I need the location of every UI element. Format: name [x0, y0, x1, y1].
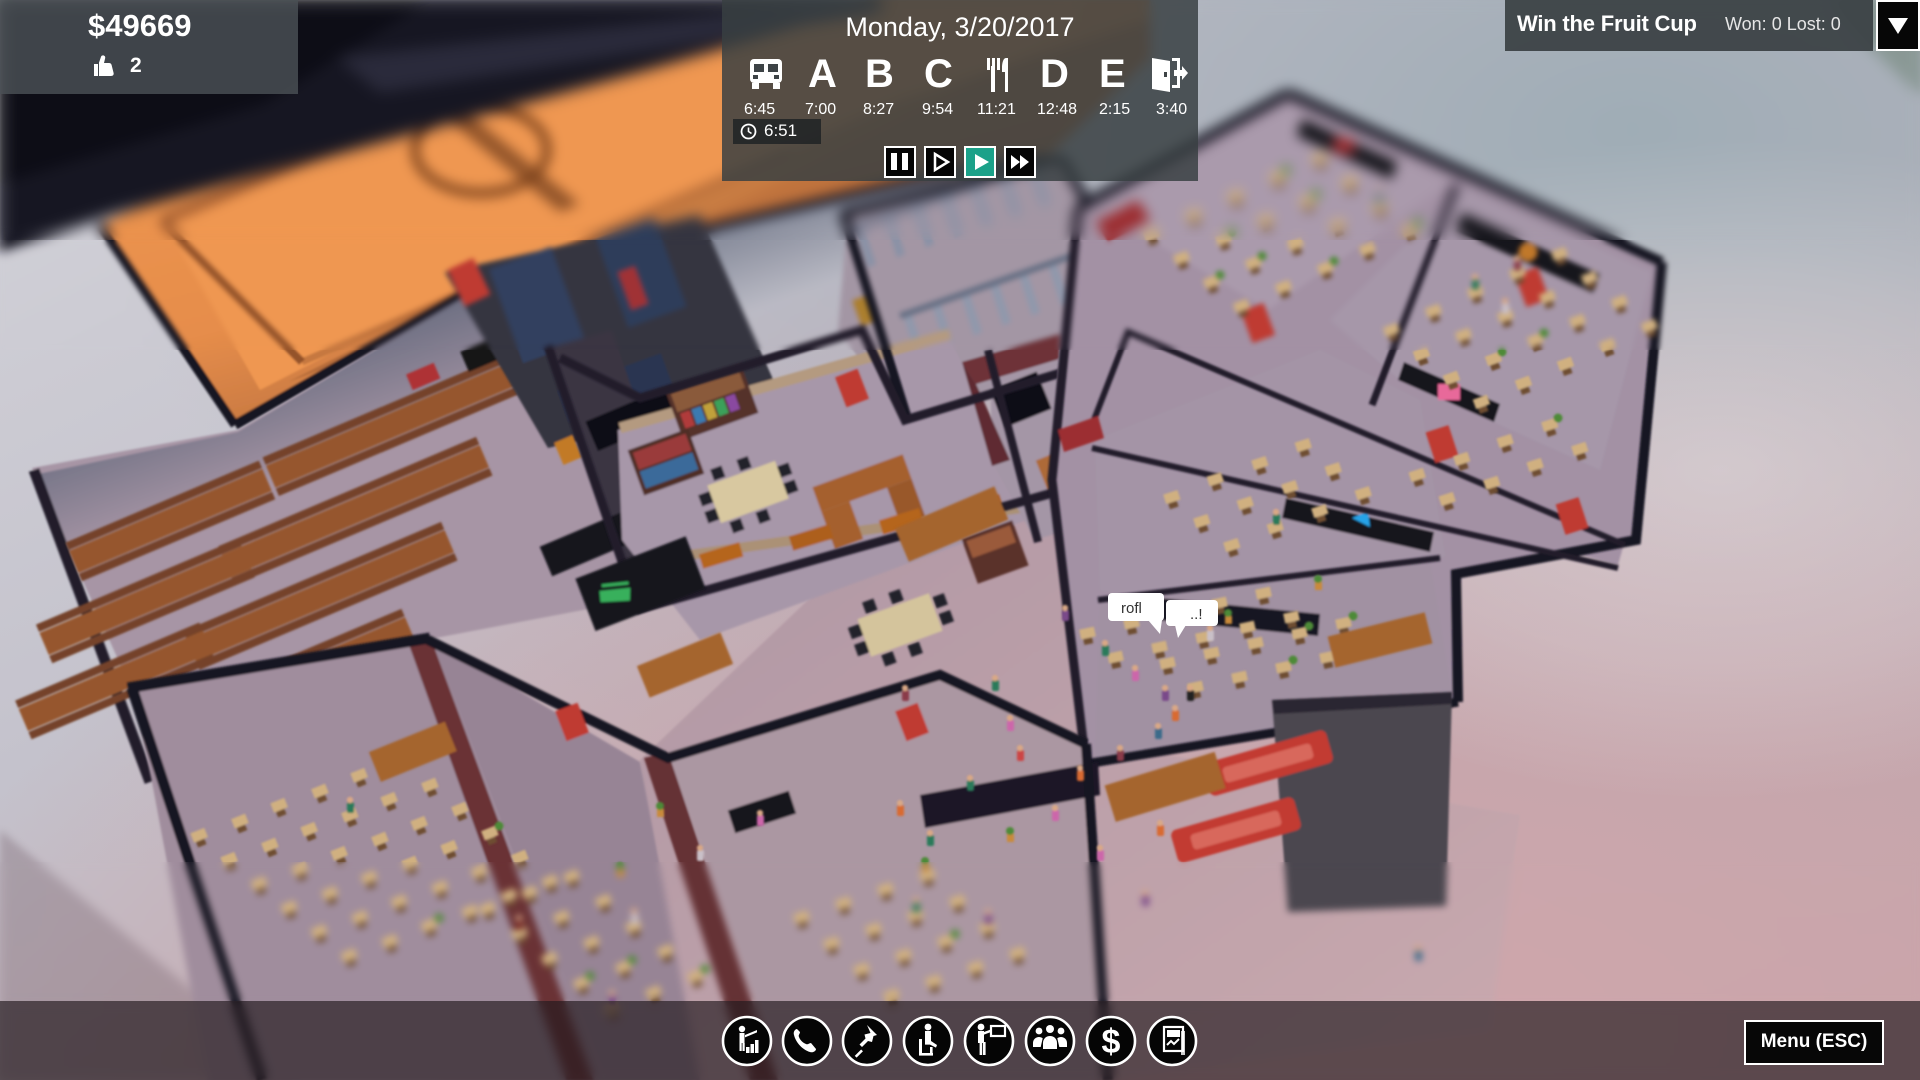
svg-text:rofl: rofl — [1121, 600, 1142, 617]
svg-text:..!: ..! — [1190, 606, 1203, 623]
svg-text:$: $ — [1102, 1023, 1121, 1061]
